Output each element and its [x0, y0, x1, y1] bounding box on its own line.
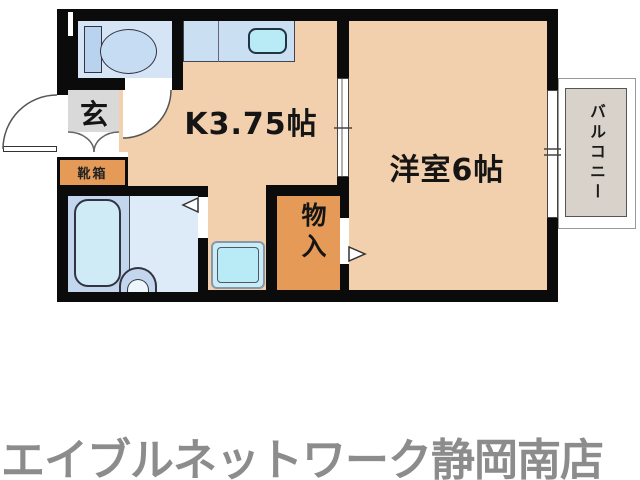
shoebox-label: 靴箱: [77, 163, 107, 182]
washing-machine-pan-inner-icon: [217, 247, 259, 283]
kitchen-counter-divider: [218, 21, 219, 62]
front-door-opening: [57, 95, 68, 152]
shoe-box: 靴箱: [57, 157, 128, 188]
western-room-label: 洋室6帖: [357, 145, 537, 189]
toilet-door-opening: [125, 78, 172, 90]
front-door-leaf-icon: [3, 146, 57, 152]
toilet-bowl-icon: [100, 29, 157, 74]
balcony-label: バルコニー: [584, 103, 608, 203]
floorplan-image: 靴箱 バルコニー: [0, 0, 640, 480]
balcony: バルコニー: [565, 88, 627, 217]
kitchen-label: K3.75帖: [170, 99, 332, 143]
storage-label: 物入: [294, 202, 330, 290]
storage-door-opening: [340, 218, 349, 264]
bathroom-door-opening: [198, 197, 208, 238]
front-door-arc-icon: [3, 95, 57, 149]
sliding-door: [337, 78, 349, 177]
toilet-wall-window: [68, 12, 73, 36]
entrance-double-door-area: [68, 132, 119, 152]
entrance-label: 玄: [72, 93, 116, 133]
kitchen-sink-icon: [248, 28, 287, 54]
store-logo-text: エイブルネットワーク静岡南店: [1, 424, 639, 480]
balcony-window: [547, 90, 558, 218]
bathtub-icon: [74, 199, 121, 287]
